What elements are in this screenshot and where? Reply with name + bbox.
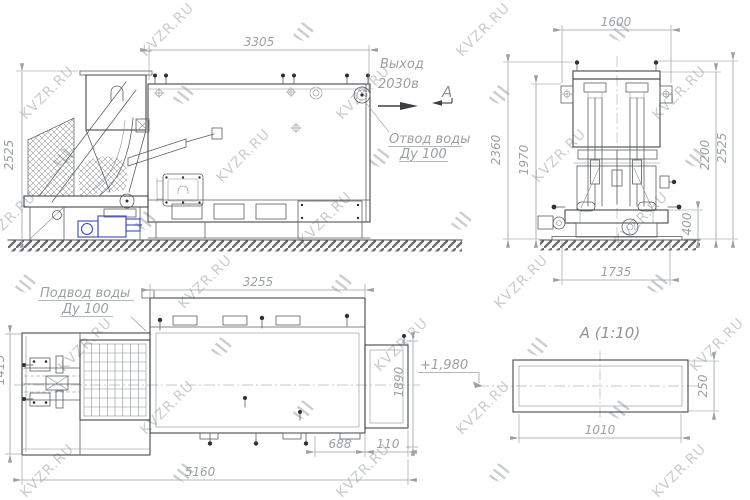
outlet-value: 2030в [378,77,419,92]
front-dim-height-outer: 2360 [489,134,503,165]
grating [80,340,150,420]
plan-dim-bottom-2: 110 [377,437,400,451]
drain-label-2: Ду 100 [399,147,447,162]
supply-label-2: Ду 100 [61,302,109,317]
supply-label-1: Подвод воды [40,286,130,301]
front-dim-width-bottom: 1735 [601,265,632,279]
side-ground [8,240,462,252]
drive-motor [78,216,142,237]
plan-dim-bottom-1: 688 [329,437,352,451]
cad-drawing-sheet: KVZR.RUKVZR.RUKVZR.RUKVZR.RUKVZR.RUKVZR.… [0,0,750,500]
side-hopper-section [24,71,222,239]
center-marks [154,87,301,133]
detail-dim-width: 1010 [585,423,616,437]
plan-dim-bottom-total: 5160 [185,465,216,479]
plan-dim-left: 1415 [0,355,7,386]
side-dim-width: 3305 [244,35,275,49]
plan-annotations: Подвод воды Ду 100 [38,286,134,317]
front-body [538,60,682,240]
side-dim-height: 2525 [2,140,16,171]
detail-title: А (1:10) [579,324,640,342]
side-tank-body [148,74,370,239]
front-ground [540,240,700,251]
section-letter: А [441,83,452,101]
front-dim-right-2: 2200 [698,139,712,170]
drain-label-1: Отвод воды [389,132,470,147]
side-view: 3305 2525 Выход 2030в А Отвод воды Ду 10… [2,35,470,252]
plan-dim-right: 1890 [392,366,406,397]
inspection-hatch [157,174,203,206]
section-arrow-icon [432,100,442,106]
front-dim-right-3: 2525 [715,133,729,164]
plan-view: Подвод воды Ду 100 3255 1415 1890 [0,275,420,485]
level-mark-value: +1,980 [420,358,468,373]
detail-view-a: А (1:10) +1,980 1010 250 [418,324,719,443]
actuator-left [584,83,606,206]
actuator-right [626,83,648,206]
detail-dim-height: 250 [696,374,710,397]
level-mark: +1,980 [418,358,483,388]
plan-body [131,290,365,446]
front-dim-right-1: 400 [680,212,694,235]
front-dim-width-top: 1600 [601,15,632,29]
technical-drawing: 3305 2525 Выход 2030в А Отвод воды Ду 10… [0,0,750,500]
front-dim-height-inner: 1970 [517,144,531,175]
plan-dim-top: 3255 [243,275,274,289]
plan-hopper [22,333,150,455]
flange-icons [310,87,370,103]
detail-dimensions: 1010 250 [519,361,719,443]
side-annotations: Выход 2030в А Отвод воды Ду 100 [366,57,470,162]
bolt-icons [153,74,370,85]
flow-arrow-icon [400,102,418,110]
outlet-label: Выход [380,57,424,72]
front-view: 1600 2360 1970 400 2200 2525 [489,15,738,285]
